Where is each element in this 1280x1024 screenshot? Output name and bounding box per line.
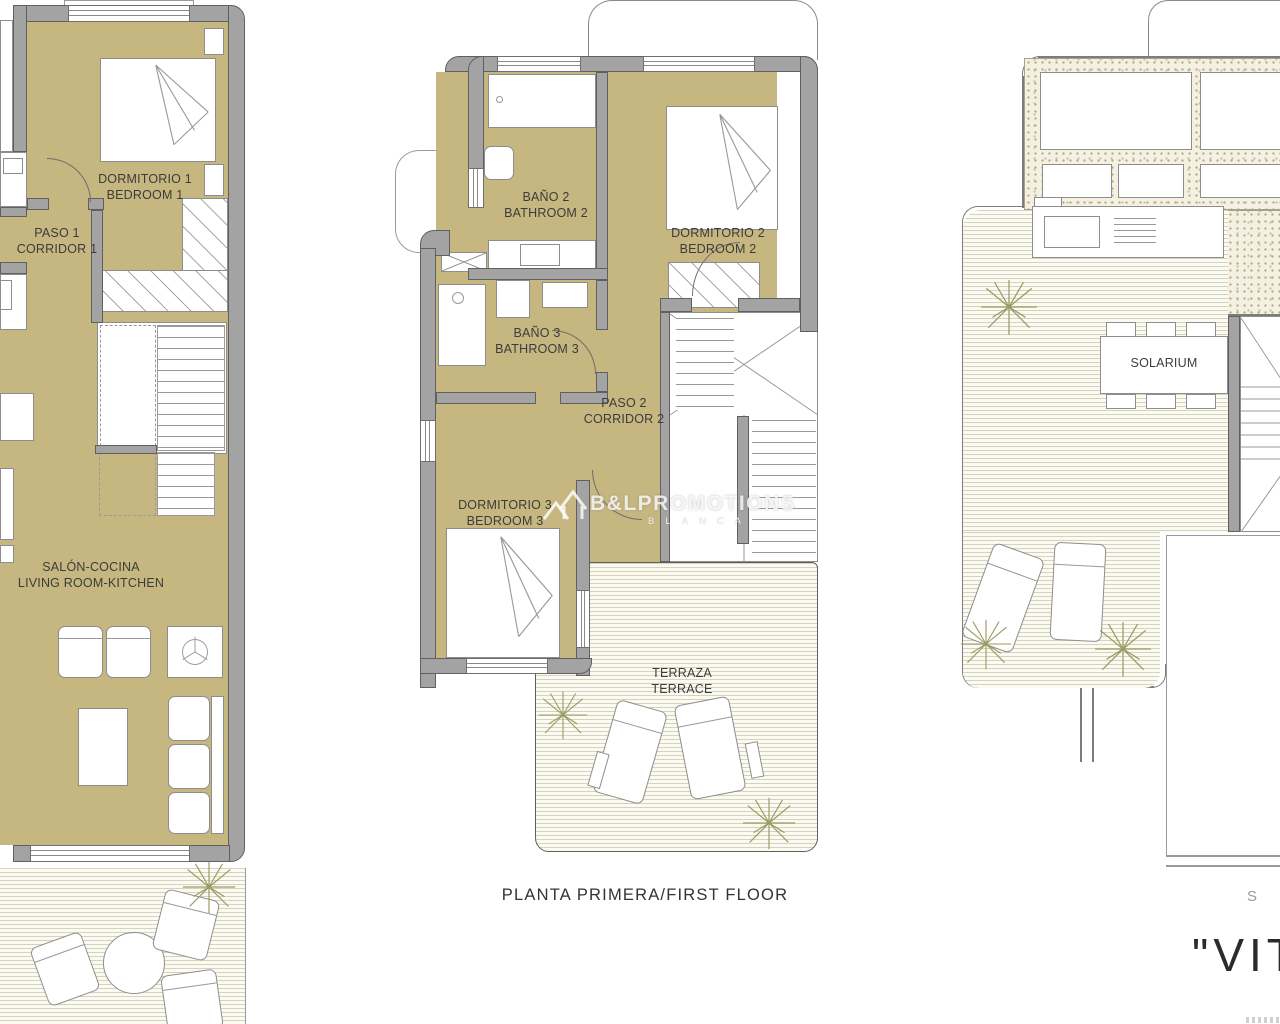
gf-wall-left-upper (13, 5, 27, 152)
ff-sink2 (520, 244, 560, 266)
ff-toilet2 (484, 146, 514, 180)
gf-side-table (167, 626, 223, 678)
ff-divider-bath3-a (596, 280, 608, 330)
gf-wardrobe-right (182, 198, 228, 272)
ff-bedroom3-label: DORMITORIO 3BEDROOM 3 (458, 498, 552, 529)
ff-bed3 (446, 528, 560, 658)
ff-wall-left-b (420, 248, 436, 688)
ff-wall-right (800, 56, 818, 332)
sol-solarium-label: SOLARIUM (1131, 356, 1198, 372)
gf-cut-room-a (0, 20, 13, 152)
gf-stair-wall (95, 445, 157, 454)
sol-skylight-2 (1200, 72, 1280, 150)
ff-window-top-2 (643, 56, 755, 72)
sol-caption-partial: S (1247, 888, 1257, 905)
gf-coffee-table (78, 708, 128, 786)
ff-window-left-a (468, 168, 484, 208)
ff-caption: PLANTA PRIMERA/FIRST FLOOR (502, 886, 788, 905)
ff-corridor2-label: PASO 2CORRIDOR 2 (584, 396, 664, 427)
ff-shower3-drain (452, 292, 464, 304)
ff-window-top-1 (497, 56, 581, 72)
gf-window-top (68, 5, 190, 22)
gf-wall-right (228, 5, 245, 862)
sol-pitched-roof (1240, 316, 1280, 532)
gf-stair-treads-lower (157, 452, 215, 516)
plant-icon (1092, 618, 1154, 680)
ff-bedroom3-window-right (576, 590, 590, 648)
sol-skylight-4 (1118, 164, 1184, 198)
gf-armchair-2 (106, 626, 151, 678)
sol-chair-top-2 (1146, 322, 1176, 337)
gf-wardrobe-bottom (100, 270, 228, 312)
ff-sink3b (542, 282, 588, 308)
sol-chair-bottom-2 (1146, 394, 1176, 409)
gf-nightstand-bottom (204, 164, 224, 196)
gf-sofa-cushion-2 (168, 744, 210, 789)
project-title-partial: "VIT (1192, 928, 1280, 982)
ff-divider-bath2-bed2 (596, 72, 608, 298)
sol-bottom-wall-band (1166, 855, 1280, 867)
gf-partition-1 (27, 198, 49, 210)
sol-wall-right (1228, 316, 1240, 532)
ff-bed2 (666, 106, 778, 230)
sol-lower-right-region (1166, 535, 1280, 857)
gf-kitchen-counter-3 (0, 545, 14, 563)
gf-stair-treads (157, 325, 225, 451)
gf-nightstand-top (204, 28, 224, 55)
sol-grill (1114, 218, 1156, 246)
plant-icon (958, 616, 1014, 672)
ff-wall-stairtop-b (738, 298, 800, 312)
plant-icon (536, 688, 590, 742)
ground-floor-plan: DORMITORIO 1BEDROOM 1 PASO 1CORRIDOR 1 S… (0, 0, 260, 1024)
gf-stair-dashed-lower (99, 452, 156, 516)
sol-stub-line-2 (1092, 688, 1094, 762)
ff-wall-bath3-bottom-a (436, 392, 536, 404)
gf-window-bottom (30, 845, 190, 862)
ff-terrace-label: TERRAZATERRACE (651, 666, 712, 697)
gf-wall-stub-1 (0, 207, 27, 217)
watermark-brand: B&LPROMOTIONS (590, 492, 796, 516)
gf-sofa-cushion-3 (168, 792, 210, 834)
plant-icon (978, 276, 1040, 338)
plant-icon (180, 858, 238, 916)
gf-cut-fixture (0, 280, 12, 310)
gf-stair-dashed-upper (100, 325, 156, 451)
sol-roof-lines (1241, 317, 1280, 533)
ff-divider-bath3-b (596, 372, 608, 392)
ff-bedroom3-window-bottom (466, 658, 548, 674)
house-logo-icon (542, 486, 588, 522)
gf-sofa-cushion-1 (168, 696, 210, 741)
ff-sink3a (496, 280, 530, 318)
sol-chair-bottom-3 (1186, 394, 1216, 409)
ff-bathroom3-label: BAÑO 3BATHROOM 3 (495, 326, 579, 357)
sol-stub-line-1 (1080, 688, 1082, 762)
cut-text-smudge (1246, 1017, 1280, 1023)
gf-armchair-1 (58, 626, 103, 678)
gf-sofa-back (211, 696, 224, 834)
ff-balcony-outline (588, 0, 818, 60)
watermark-subtitle: BLANCA (648, 516, 752, 527)
gf-living-label: SALÓN-COCINALIVING ROOM-KITCHEN (18, 560, 164, 591)
ff-bedroom2-label: DORMITORIO 2BEDROOM 2 (671, 226, 765, 257)
sol-skylight-5 (1200, 164, 1280, 198)
ff-shower2 (488, 74, 596, 128)
gf-kitchen-counter-2 (0, 468, 14, 540)
sol-chair-bottom-1 (1106, 394, 1136, 409)
ceiling-fan-icon (168, 627, 222, 677)
sol-balcony-outline (1148, 0, 1280, 56)
ff-window-left-b (420, 420, 436, 462)
ff-stair-treads-upper (676, 318, 734, 410)
gf-bed (100, 58, 216, 162)
sol-skylight-3 (1042, 164, 1112, 198)
ff-shower2-drain (496, 96, 503, 103)
ff-wall-stairtop-a (660, 298, 692, 312)
watermark: B&LPROMOTIONS BLANCA (540, 482, 800, 534)
sol-skylight-1 (1040, 72, 1192, 150)
floorplan-sheet: DORMITORIO 1BEDROOM 1 PASO 1CORRIDOR 1 S… (0, 0, 1280, 1024)
gf-kitchen-counter-1 (0, 393, 34, 441)
ff-bathroom2-label: BAÑO 2BATHROOM 2 (504, 190, 588, 221)
gf-corridor1-label: PASO 1CORRIDOR 1 (17, 226, 97, 257)
gf-terrace-chair-3 (160, 968, 224, 1024)
sol-chair-top-1 (1106, 322, 1136, 337)
plant-icon (740, 794, 798, 852)
ff-wall-bath2-bottom (468, 268, 608, 280)
sol-chair-top-3 (1186, 322, 1216, 337)
gf-cut-sink (3, 158, 23, 174)
gf-wall-stub-2 (0, 262, 27, 274)
gf-bedroom1-label: DORMITORIO 1BEDROOM 1 (98, 172, 192, 203)
sol-kitchen-sink (1044, 216, 1100, 248)
